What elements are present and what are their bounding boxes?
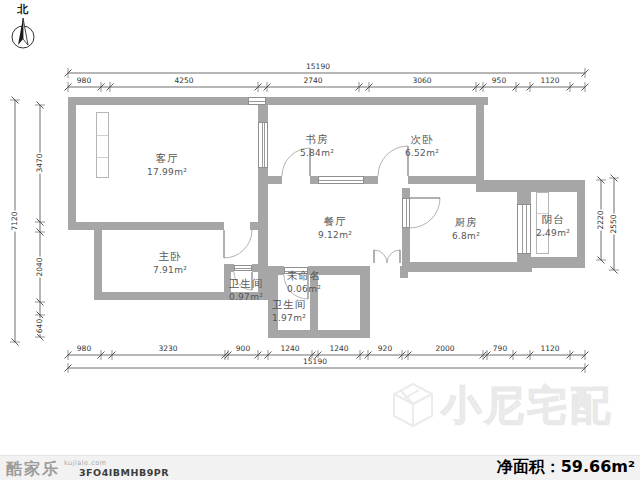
- room-area: 17.99m²: [147, 167, 187, 177]
- dimension-label: 1240: [328, 345, 349, 353]
- cabinet: [96, 112, 109, 178]
- dimension-label: 900: [235, 345, 251, 353]
- dimension-label: 2550: [610, 213, 618, 234]
- wall: [268, 176, 282, 184]
- north-label: 北: [7, 3, 39, 16]
- room-label-unnamed: 未命名 0.06m²: [287, 269, 322, 294]
- room-area: 7.91m²: [153, 265, 187, 275]
- wall: [68, 97, 488, 105]
- plan-id: 3FO4IBMHB9PR: [79, 467, 169, 478]
- room-label-living: 客厅 17.99m²: [147, 152, 187, 177]
- wall: [476, 97, 484, 192]
- window: [517, 204, 531, 254]
- room-name: 厨房: [452, 216, 480, 230]
- compass-icon: [8, 16, 38, 52]
- room-label-master: 主卧 7.91m²: [153, 250, 187, 275]
- room-area: 6.8m²: [452, 231, 480, 241]
- room-area: 5.84m²: [300, 148, 334, 158]
- dimension-label: 3230: [157, 345, 178, 353]
- wall: [68, 97, 76, 230]
- net-area-label: 净面积：: [497, 457, 561, 476]
- room-name: 卫生间: [272, 298, 307, 312]
- dimension-label: 2740: [302, 77, 323, 85]
- dimension-label: 1120: [539, 345, 560, 353]
- window-pane-line: [235, 268, 251, 269]
- room-label-study: 书房 5.84m²: [300, 133, 334, 158]
- cabinet-shelf-line: [97, 157, 108, 158]
- door-arc-bedroom2: [378, 146, 408, 176]
- door-arc-master: [224, 230, 252, 258]
- window-pane-line: [262, 123, 263, 167]
- wall: [400, 266, 408, 278]
- dimension-label: 1240: [279, 345, 300, 353]
- dimension-label: 920: [377, 345, 393, 353]
- cabinet-shelf-line: [97, 135, 108, 136]
- brand-watermark-icon: [392, 382, 434, 428]
- door-arc-double-right: [387, 250, 400, 263]
- dimension-label: 2040: [36, 256, 44, 277]
- window: [248, 97, 266, 105]
- brand-logo: 酷家乐: [6, 459, 60, 480]
- wall: [94, 230, 102, 300]
- window-pane-line: [406, 199, 407, 227]
- wall: [476, 180, 585, 192]
- room-area: 1.97m²: [272, 313, 307, 323]
- wall: [68, 222, 224, 230]
- room-name: 次卧: [405, 133, 439, 147]
- room-area: 0.06m²: [287, 284, 322, 294]
- wall: [258, 105, 268, 122]
- watermark-text: 小尼宅配: [441, 382, 613, 428]
- watermark: 小尼宅配: [392, 382, 613, 428]
- window-pane-line: [264, 123, 265, 167]
- floorplan-canvas: 北 小尼宅配: [0, 0, 640, 480]
- room-name: 主卧: [153, 250, 187, 264]
- window-pane-line: [249, 101, 265, 102]
- wall: [250, 222, 258, 230]
- dimension-label: 1120: [539, 77, 560, 85]
- dimension-label: 2000: [434, 345, 455, 353]
- wall: [408, 176, 478, 184]
- dimension-label: 640: [36, 318, 44, 334]
- window: [258, 122, 268, 168]
- room-area: 6.52m²: [405, 148, 439, 158]
- brand-site-text: kujiale.com: [64, 459, 107, 467]
- wall: [364, 176, 378, 184]
- window: [402, 198, 410, 228]
- room-label-kitchen: 厨房 6.8m²: [452, 216, 480, 241]
- room-name: 餐厅: [318, 215, 352, 229]
- wall: [310, 176, 318, 184]
- room-name: 书房: [300, 133, 334, 147]
- wall: [360, 266, 370, 338]
- north-indicator: 北: [7, 3, 39, 56]
- footer-bar: 酷家乐 kujiale.com 3FO4IBMHB9PR 净面积：59.66m²: [0, 455, 640, 480]
- dimension-label: 15190: [305, 63, 331, 71]
- room-label-bedroom2: 次卧 6.52m²: [405, 133, 439, 158]
- dimension-label: 15190: [302, 358, 328, 366]
- room-area: 9.12m²: [318, 230, 352, 240]
- door-arc-kitchen: [410, 198, 440, 228]
- room-name: 客厅: [147, 152, 187, 166]
- room-label-bath-small: 卫生间 0.97m²: [229, 277, 264, 302]
- room-area: 2.49m²: [536, 228, 570, 238]
- dimension-label: 3060: [411, 77, 432, 85]
- wall: [402, 262, 532, 272]
- window-pane-line: [522, 205, 523, 253]
- room-label-balcony: 阴台 2.49m²: [536, 213, 570, 238]
- dimension-label: 950: [491, 77, 507, 85]
- window-pane-line: [526, 205, 527, 253]
- net-area-value: 59.66m²: [561, 457, 635, 476]
- dimension-label: 980: [76, 345, 92, 353]
- dimension-label: 790: [492, 345, 508, 353]
- room-name: 阴台: [536, 213, 570, 227]
- room-label-dining: 餐厅 9.12m²: [318, 215, 352, 240]
- dimension-label: 7120: [11, 210, 19, 231]
- dimension-label: 2220: [597, 209, 605, 230]
- window: [318, 176, 364, 184]
- dimension-label: 4250: [173, 77, 194, 85]
- wall: [577, 186, 585, 268]
- dimension-label: 3470: [36, 152, 44, 173]
- room-label-bath-main: 卫生间 1.97m²: [272, 298, 307, 323]
- dimension-label: 980: [76, 77, 92, 85]
- wall: [402, 188, 410, 198]
- room-area: 0.97m²: [229, 292, 264, 302]
- wall: [268, 266, 284, 275]
- room-name: 未命名: [287, 269, 322, 283]
- room-name: 卫生间: [229, 277, 264, 291]
- net-area: 净面积：59.66m²: [497, 457, 635, 478]
- door-arc-double-left: [374, 250, 387, 263]
- window: [234, 265, 252, 271]
- wall: [268, 330, 370, 338]
- wall: [517, 192, 531, 204]
- wall: [402, 228, 410, 262]
- window-pane-line: [319, 180, 363, 181]
